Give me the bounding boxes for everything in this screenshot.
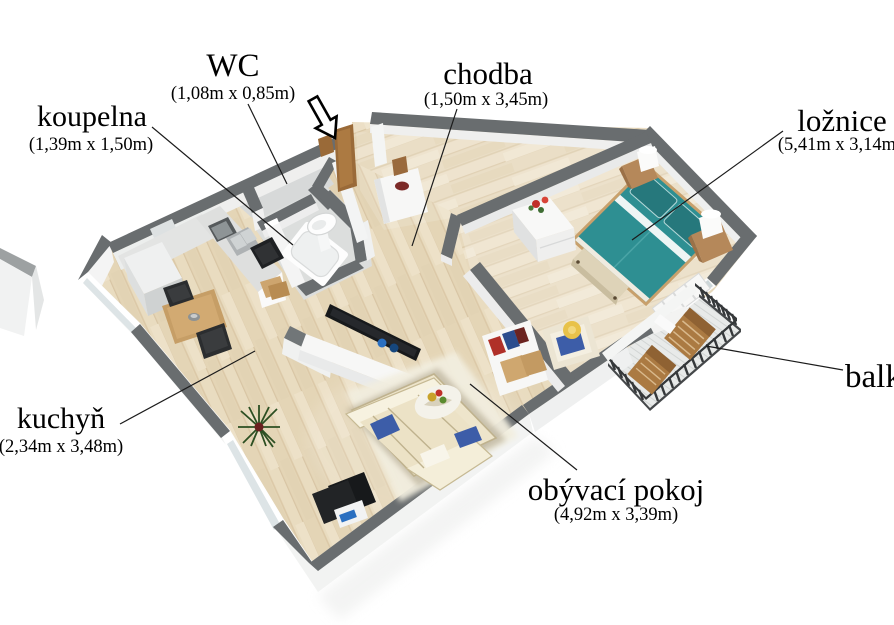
svg-text:obývací pokoj: obývací pokoj: [528, 472, 705, 507]
svg-text:chodba: chodba: [443, 56, 533, 91]
svg-text:(1,39m x 1,50m): (1,39m x 1,50m): [29, 135, 153, 155]
svg-text:WC: WC: [206, 48, 259, 84]
svg-text:(2,34m x 3,48m): (2,34m x 3,48m): [0, 437, 123, 457]
svg-text:kuchyň: kuchyň: [17, 402, 105, 435]
svg-text:(1,08m x 0,85m): (1,08m x 0,85m): [171, 84, 295, 104]
svg-text:(5,41m x 3,14m): (5,41m x 3,14m): [778, 135, 894, 155]
svg-text:(4,92m x 3,39m): (4,92m x 3,39m): [554, 505, 678, 525]
svg-text:koupelna: koupelna: [37, 100, 147, 133]
svg-text:ložnice: ložnice: [797, 103, 887, 138]
svg-text:balkon: balkon: [845, 359, 894, 395]
svg-text:(1,50m x 3,45m): (1,50m x 3,45m): [424, 90, 548, 110]
